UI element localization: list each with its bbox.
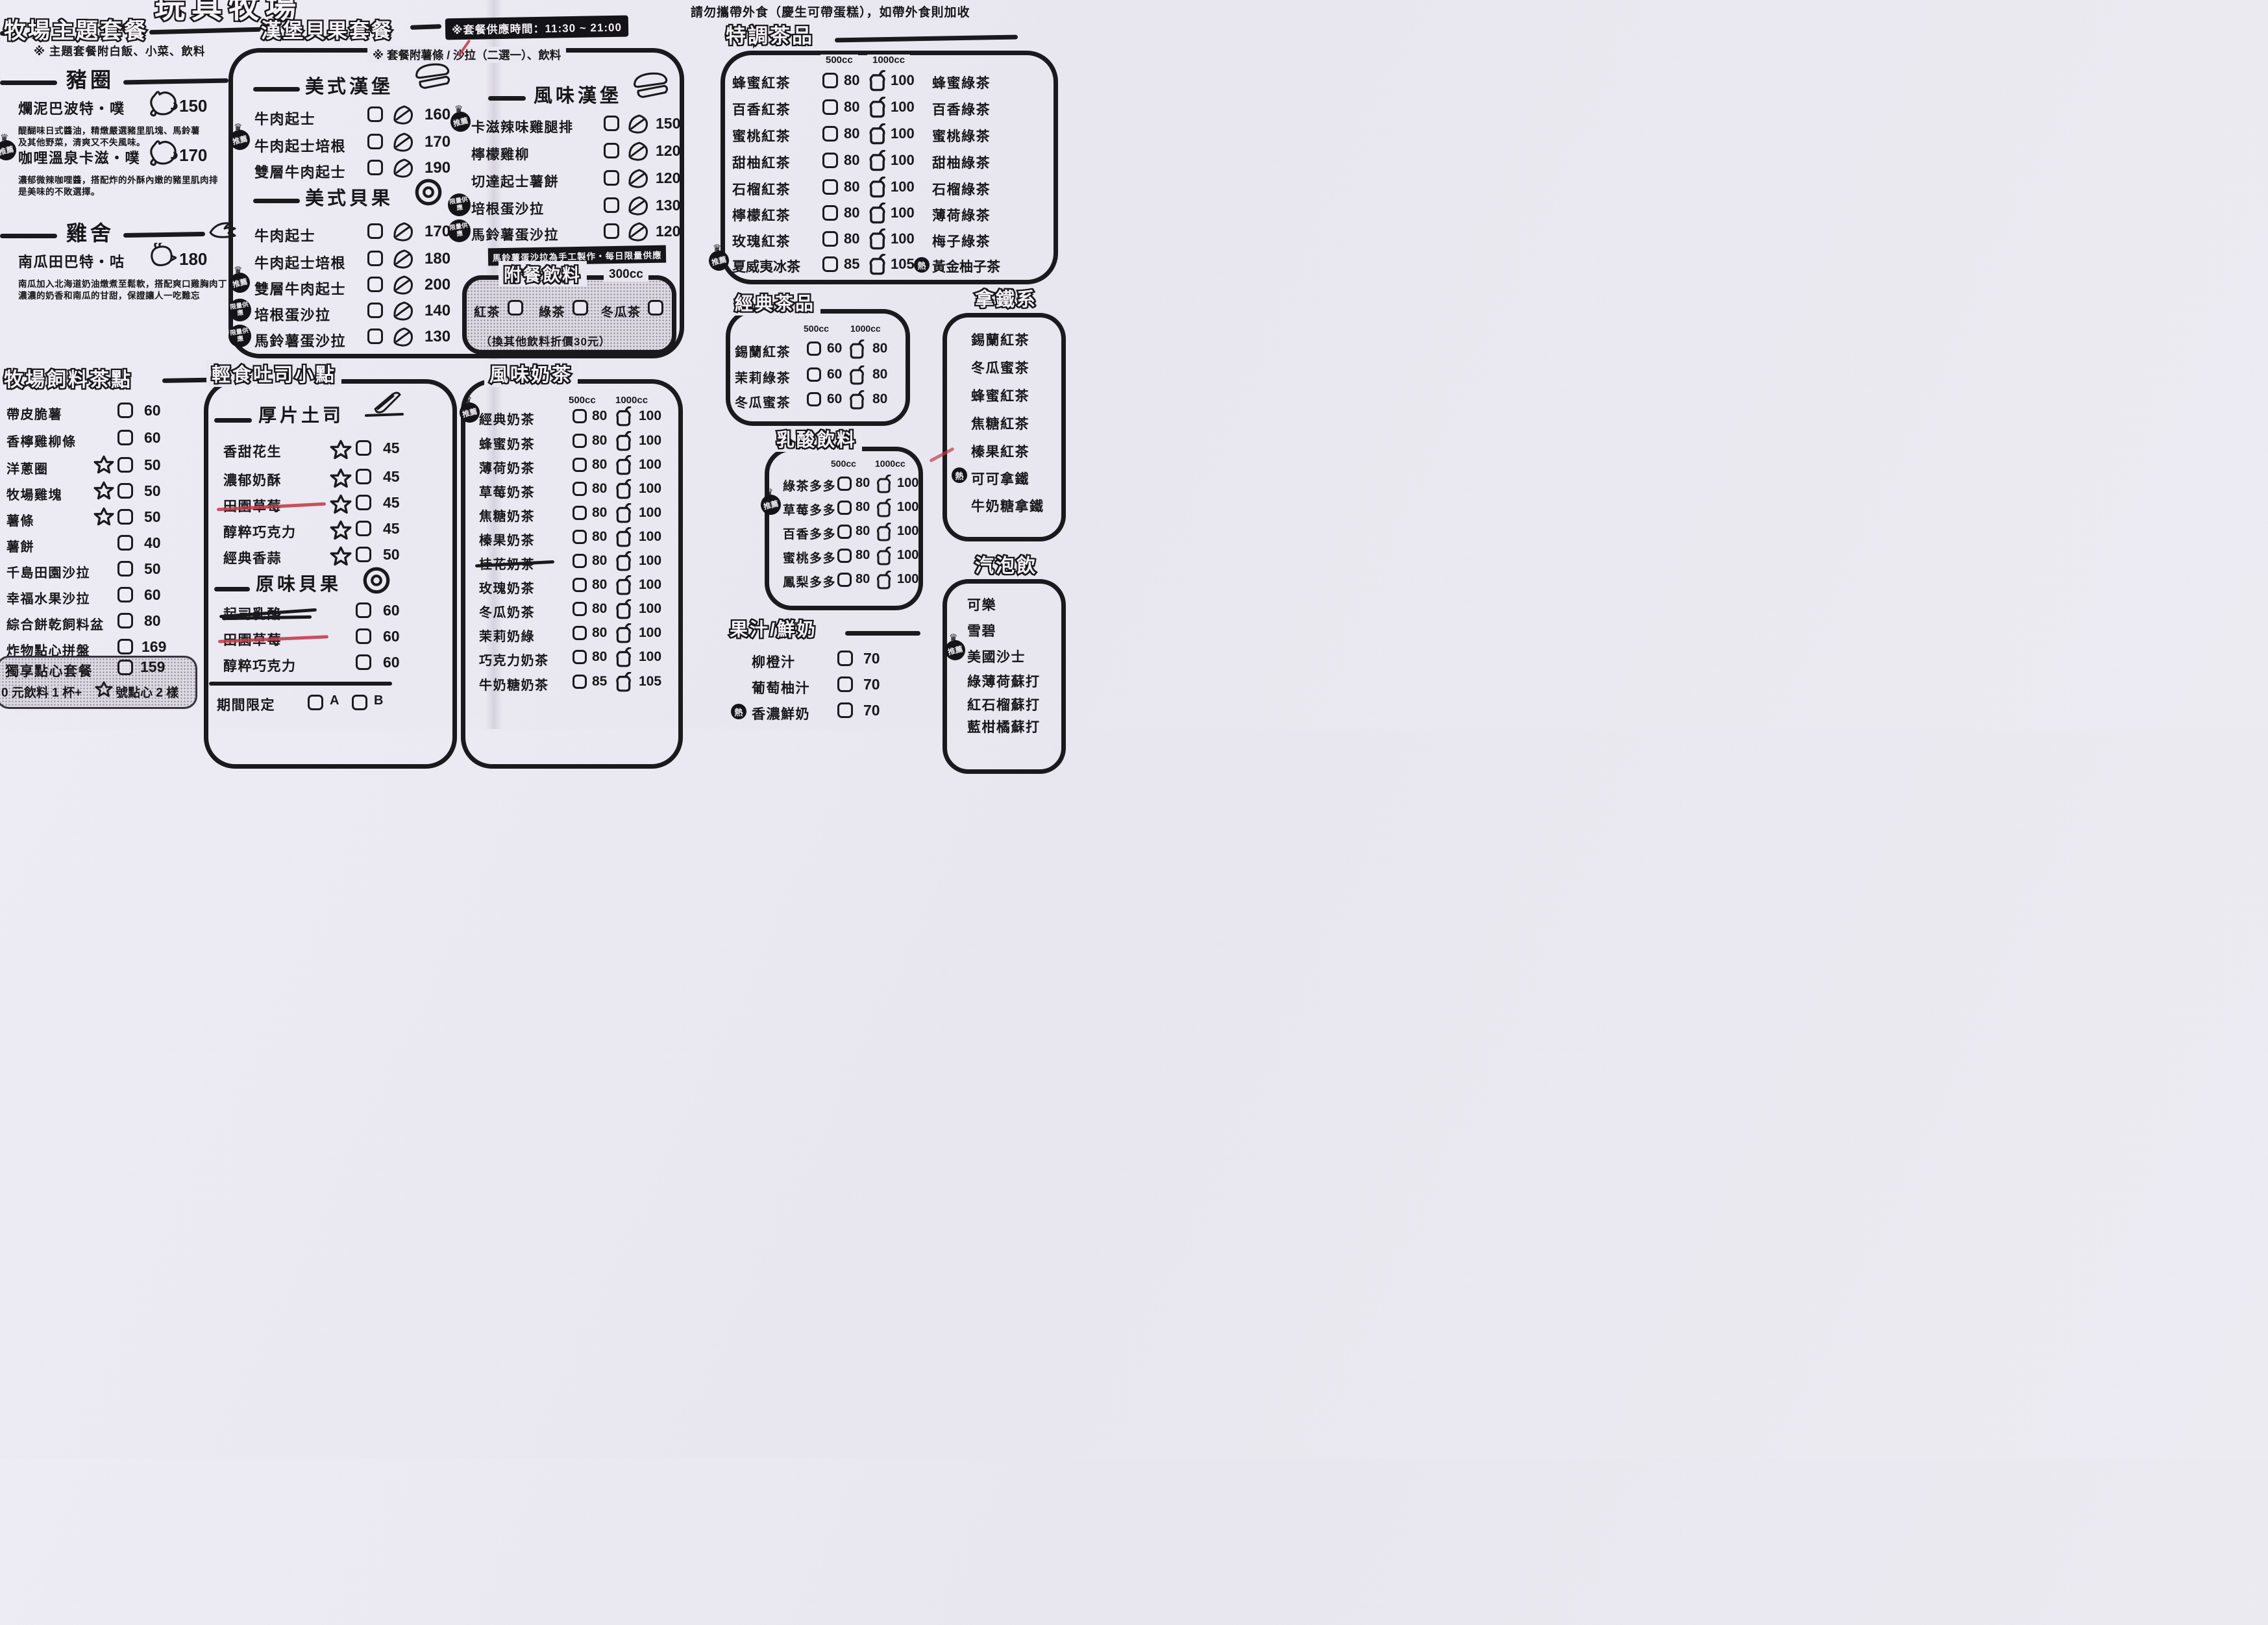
item-description: 南瓜加入北海道奶油燉煮至鬆軟，搭配爽口雞胸肉丁 — [18, 277, 227, 290]
price-500: 80 — [844, 125, 859, 142]
price-500: 60 — [827, 391, 842, 407]
checkbox — [807, 367, 821, 382]
item-description: 是美味的不敗選擇。 — [18, 184, 100, 197]
section-title-snacks: 牧場飼料茶點 — [4, 364, 132, 392]
section-title-toast: 輕食吐司小點 — [206, 360, 341, 387]
item-price: 170 — [179, 145, 207, 166]
jug-icon — [614, 455, 632, 476]
leaf-icon — [392, 221, 415, 242]
checkbox — [117, 457, 133, 473]
item-price: 40 — [144, 534, 161, 552]
jug-icon — [848, 366, 865, 386]
price-1000: 80 — [872, 367, 887, 382]
item-name: 綠薄荷蘇打 — [967, 671, 1041, 691]
item-name: 草莓多多 — [783, 501, 836, 518]
leaf-icon — [392, 274, 415, 295]
item-name: 獨享點心套餐 — [5, 661, 93, 680]
jug-icon — [867, 254, 887, 276]
jug-icon — [867, 123, 887, 145]
divider — [0, 234, 57, 238]
item-name: 咖哩溫泉卡滋・噗 — [18, 147, 140, 167]
leaf-icon — [627, 113, 650, 134]
checkbox — [822, 153, 838, 168]
item-name: 千島田園沙拉 — [6, 562, 90, 581]
item-name: 薄荷綠茶 — [932, 205, 991, 225]
item-price: 150 — [179, 96, 207, 116]
item-price: 50 — [144, 482, 161, 500]
item-name: 可可拿鐵 — [971, 469, 1029, 488]
price-1000: 80 — [872, 391, 887, 407]
jug-icon — [848, 390, 865, 410]
item-name: 綜合餅乾飼料盆 — [6, 614, 105, 633]
star-icon — [93, 480, 114, 501]
checkbox — [807, 341, 821, 356]
price-500: 80 — [844, 99, 859, 116]
pig-icon — [146, 139, 179, 167]
item-name: 雪碧 — [967, 621, 996, 640]
jug-icon — [875, 547, 892, 566]
item-name: 爛泥巴波特・噗 — [18, 97, 125, 118]
price-1000: 100 — [891, 205, 915, 221]
leaf-icon — [627, 221, 650, 242]
price-500: 80 — [856, 500, 870, 515]
item-name: 蜂蜜紅茶 — [732, 73, 791, 92]
hot-badge: 熱 — [952, 467, 967, 483]
jug-icon — [867, 97, 887, 119]
jug-icon — [614, 599, 632, 620]
item-price: 50 — [144, 456, 161, 474]
checkbox — [117, 509, 133, 525]
checkbox — [822, 205, 838, 221]
combo-note: 號點心 2 樣 — [116, 683, 179, 701]
checkbox — [117, 430, 133, 445]
item-price: 80 — [144, 612, 161, 630]
section-title-latte: 拿鐵系 — [975, 284, 1037, 312]
item-price: 60 — [144, 429, 161, 447]
price-500: 80 — [844, 230, 859, 247]
drink-option: 紅茶 — [474, 303, 500, 320]
item-description: 濃郁微辣咖哩醬，搭配炸的外酥內嫩的豬里肌肉排 — [18, 173, 218, 186]
item-name: 香檸雞柳條 — [6, 431, 77, 450]
checkbox — [117, 403, 133, 418]
item-description: 濃濃的奶香和南瓜的甘甜，保證讓人一吃難忘 — [18, 288, 200, 301]
checkbox — [837, 525, 852, 539]
jug-icon — [867, 229, 887, 251]
jug-icon — [867, 203, 887, 225]
crown-icon: ♛ — [765, 486, 773, 498]
recommended-badge: ♛推薦 — [761, 495, 783, 521]
checkbox — [822, 99, 838, 115]
toast-frame — [204, 379, 457, 769]
checkbox — [837, 702, 853, 718]
jug-icon — [875, 523, 892, 542]
item-price: 50 — [144, 508, 161, 526]
recommended-badge: ♛推薦 — [460, 403, 482, 428]
section-title-theme-sets: 牧場主題套餐 — [4, 13, 148, 45]
item-name: 帶皮脆薯 — [6, 404, 62, 423]
price-1000: 100 — [897, 548, 918, 563]
item-name: 百香多多 — [783, 525, 836, 542]
checkbox — [822, 73, 838, 88]
jug-icon — [614, 479, 632, 500]
jug-icon — [614, 527, 632, 548]
section-title-classic-tea: 經典茶品 — [730, 290, 820, 316]
size-header-500: 500cc — [831, 458, 856, 469]
crown-icon: ♛ — [713, 242, 721, 254]
item-name: 美國沙士 — [967, 647, 1026, 666]
leaf-icon — [627, 140, 650, 161]
star-icon — [330, 439, 352, 461]
item-price: 70 — [863, 702, 880, 719]
price-1000: 100 — [891, 72, 915, 89]
recommended-badge: ♛推薦 — [230, 130, 252, 156]
item-name: 榛果紅茶 — [971, 441, 1029, 461]
leaf-icon — [627, 167, 650, 188]
star-icon — [93, 454, 114, 475]
checkbox — [822, 256, 838, 272]
star-icon — [330, 493, 352, 515]
leaf-icon — [392, 131, 415, 152]
item-name: 蜜桃紅茶 — [732, 126, 791, 145]
checkbox — [117, 535, 133, 551]
item-price: 159 — [140, 658, 165, 676]
price-1000: 100 — [897, 476, 918, 491]
burger-note: ※ 套餐附薯條 / 沙拉（二選一）、飲料 — [367, 47, 566, 63]
item-name: 錫蘭紅茶 — [735, 341, 791, 360]
price-500: 60 — [827, 367, 842, 382]
item-name: 檸檬紅茶 — [732, 205, 791, 225]
price-500: 85 — [844, 256, 859, 273]
crown-icon: ♛ — [949, 632, 957, 643]
item-name: 夏威夷冰茶 — [732, 256, 800, 276]
item-name: 柳橙汁 — [752, 652, 796, 671]
section-title-soda: 汽泡飲 — [975, 551, 1037, 578]
bagel-icon — [361, 565, 392, 596]
checkbox — [508, 300, 523, 316]
checkbox — [117, 639, 133, 654]
size-header-1000: 1000cc — [875, 458, 906, 469]
checkbox — [822, 179, 838, 195]
item-name: 紅石榴蘇打 — [967, 695, 1041, 714]
item-name: 石榴紅茶 — [732, 179, 791, 199]
leaf-icon — [392, 104, 415, 125]
checkbox — [117, 660, 133, 675]
checkbox — [837, 549, 852, 563]
item-name: 蜂蜜綠茶 — [932, 73, 991, 92]
item-name: 蜂蜜紅茶 — [971, 386, 1029, 405]
checkbox — [837, 501, 852, 515]
crown-icon: ♛ — [234, 121, 242, 133]
crown-icon: ♛ — [454, 103, 463, 115]
item-name: 冬瓜蜜茶 — [735, 392, 791, 411]
burger-icon — [631, 71, 671, 101]
recommended-badge: ♛推薦 — [450, 112, 473, 138]
jug-icon — [614, 623, 632, 644]
jug-icon — [867, 70, 887, 92]
item-name: 葡萄柚汁 — [752, 678, 810, 697]
item-name: 百香綠茶 — [932, 99, 991, 119]
section-title-milk-tea: 風味奶茶 — [484, 360, 578, 387]
crown-icon: ♛ — [234, 264, 242, 276]
price-500: 80 — [844, 179, 859, 195]
price-500: 80 — [856, 524, 870, 539]
star-icon — [330, 519, 352, 541]
price-500: 60 — [827, 341, 842, 356]
set-drink-title: 附餐飲料 — [499, 261, 587, 286]
divider — [410, 24, 441, 30]
milk-tea-frame — [461, 379, 683, 769]
price-500: 80 — [856, 572, 870, 587]
price-1000: 100 — [891, 179, 915, 195]
crown-icon: ♛ — [463, 394, 472, 406]
item-price: 60 — [144, 586, 161, 604]
item-price: 70 — [863, 676, 880, 693]
item-name: 茉莉綠茶 — [735, 367, 791, 386]
jug-icon — [614, 551, 632, 572]
jug-icon — [867, 150, 887, 172]
jug-icon — [875, 499, 892, 518]
item-price: 180 — [179, 249, 207, 269]
divider — [123, 79, 228, 85]
recommended-badge: ♛推薦 — [0, 140, 18, 166]
item-name: 甜柚紅茶 — [732, 153, 791, 172]
checkbox — [837, 676, 853, 692]
leaf-icon — [392, 300, 415, 321]
divider — [149, 27, 261, 35]
divider — [123, 232, 205, 238]
checkbox — [837, 477, 852, 491]
price-500: 80 — [856, 476, 870, 491]
jug-icon — [614, 672, 632, 693]
item-name: 冬瓜蜜茶 — [971, 358, 1029, 377]
price-1000: 105 — [891, 256, 915, 273]
divider — [845, 631, 920, 636]
hot-badge: 熱 — [914, 257, 930, 273]
item-name: 鳳梨多多 — [783, 573, 836, 590]
section-title-yogurt: 乳酸飲料 — [771, 426, 862, 452]
checkbox — [573, 300, 588, 316]
item-name: 玫瑰紅茶 — [732, 231, 791, 251]
jug-icon — [614, 503, 632, 524]
item-name: 牛奶糖拿鐵 — [971, 496, 1044, 515]
checkbox — [822, 231, 838, 247]
jug-icon — [848, 340, 865, 360]
item-name: 焦糖紅茶 — [971, 414, 1029, 433]
price-1000: 100 — [891, 152, 915, 169]
star-icon — [93, 506, 114, 527]
item-price: 70 — [863, 650, 880, 667]
no-outside-food-notice: 請勿攜帶外食（慶生可帶蛋糕），如帶外食則加收 — [691, 3, 970, 20]
subsection-hen-house: 雞舍 — [66, 217, 114, 247]
item-name: 藍柑橘蘇打 — [967, 717, 1041, 736]
theme-note: ※ 主題套餐附白飯、小菜、飲料 — [34, 43, 205, 59]
size-header-500: 500cc — [804, 323, 829, 334]
item-name: 可樂 — [967, 595, 996, 614]
item-name: 梅子綠茶 — [932, 231, 991, 251]
price-500: 80 — [856, 548, 870, 563]
combo-note: 0 元飲料 1 杯+ — [1, 683, 82, 701]
item-name: 香濃鮮奶 — [752, 704, 810, 723]
set-drink-size: 300cc — [604, 267, 648, 282]
section-title-special-tea: 特調茶品 — [726, 19, 814, 49]
item-name: 甜柚綠茶 — [932, 153, 991, 172]
chick-icon — [145, 243, 177, 270]
jug-icon — [614, 431, 632, 452]
checkbox — [648, 300, 663, 316]
item-description: 及其他野菜，清爽又不失風味。 — [18, 135, 145, 148]
price-1000: 100 — [891, 99, 915, 116]
star-icon — [330, 467, 352, 490]
item-name: 黃金柚子茶 — [932, 256, 1000, 276]
burger-icon — [413, 62, 453, 92]
section-title-juice: 果汁/鮮奶 — [730, 615, 817, 641]
item-price: 60 — [144, 402, 161, 419]
jug-icon — [614, 647, 632, 668]
item-description: 醍醐味日式醬油，精燉嚴選豬里肌塊、馬鈴薯 — [18, 123, 200, 136]
crown-icon: ♛ — [0, 132, 8, 143]
checkbox — [837, 573, 852, 587]
checkbox — [117, 561, 133, 577]
item-name: 牧場雞塊 — [6, 484, 62, 503]
size-header-1000: 1000cc — [867, 55, 910, 66]
drink-option: 綠茶 — [539, 303, 565, 320]
item-name: 幸福水果沙拉 — [6, 588, 90, 607]
divider — [0, 81, 57, 85]
item-name: 綠茶多多 — [783, 477, 836, 494]
checkbox — [837, 651, 853, 666]
price-1000: 100 — [891, 230, 915, 247]
section-title-burger-bagel: 漢堡貝果套餐 — [261, 14, 393, 43]
item-price: 50 — [144, 560, 161, 578]
price-500: 80 — [844, 72, 859, 89]
leaf-icon — [627, 195, 650, 216]
size-header-500: 500cc — [820, 55, 858, 66]
item-name: 南瓜田巴特・咕 — [18, 251, 125, 271]
price-1000: 80 — [872, 341, 887, 356]
divider — [835, 35, 1018, 43]
star-icon — [330, 545, 352, 567]
star-icon — [95, 680, 113, 699]
item-name: 洋蔥圈 — [6, 458, 49, 477]
jug-icon — [875, 475, 892, 494]
size-header-1000: 1000cc — [850, 323, 881, 334]
hot-badge: 熱 — [731, 704, 746, 719]
price-1000: 100 — [891, 125, 915, 142]
recommended-badge: ♛推薦 — [709, 251, 731, 277]
set-drink-note: （換其他飲料折價30元） — [480, 332, 611, 349]
item-name: 蜜桃綠茶 — [932, 126, 991, 145]
toast-icon — [365, 390, 406, 419]
item-name: 石榴綠茶 — [932, 179, 991, 199]
item-name: 錫蘭紅茶 — [971, 330, 1029, 349]
jug-icon — [614, 575, 632, 596]
jug-icon — [867, 177, 887, 199]
checkbox — [117, 587, 133, 602]
item-name: 薯餅 — [6, 536, 34, 555]
item-price: 169 — [142, 638, 166, 656]
leaf-icon — [392, 326, 415, 347]
price-1000: 100 — [897, 572, 918, 587]
jug-icon — [614, 406, 632, 427]
wing-doodle-icon — [208, 218, 239, 240]
price-1000: 100 — [897, 524, 918, 539]
item-name: 蜜桃多多 — [783, 549, 836, 566]
bagel-icon — [413, 177, 444, 208]
leaf-icon — [392, 248, 415, 269]
service-time-badge: ※套餐供應時間：11:30 ~ 21:00 — [445, 16, 628, 40]
leaf-icon — [392, 157, 415, 178]
checkbox — [822, 126, 838, 142]
subsection-pig-pen: 豬圈 — [66, 64, 114, 93]
checkbox — [117, 483, 133, 499]
jug-icon — [875, 571, 892, 590]
item-name: 薯條 — [6, 510, 34, 529]
item-name: 百香紅茶 — [732, 99, 791, 119]
recommended-badge: ♛推薦 — [945, 640, 967, 666]
checkbox — [117, 613, 133, 628]
recommended-badge: ♛推薦 — [230, 273, 252, 299]
price-500: 80 — [844, 205, 859, 221]
drink-option: 冬瓜茶 — [601, 303, 641, 320]
pig-icon — [146, 90, 179, 118]
price-500: 80 — [844, 152, 859, 169]
checkbox — [807, 392, 821, 406]
price-1000: 100 — [897, 500, 918, 515]
